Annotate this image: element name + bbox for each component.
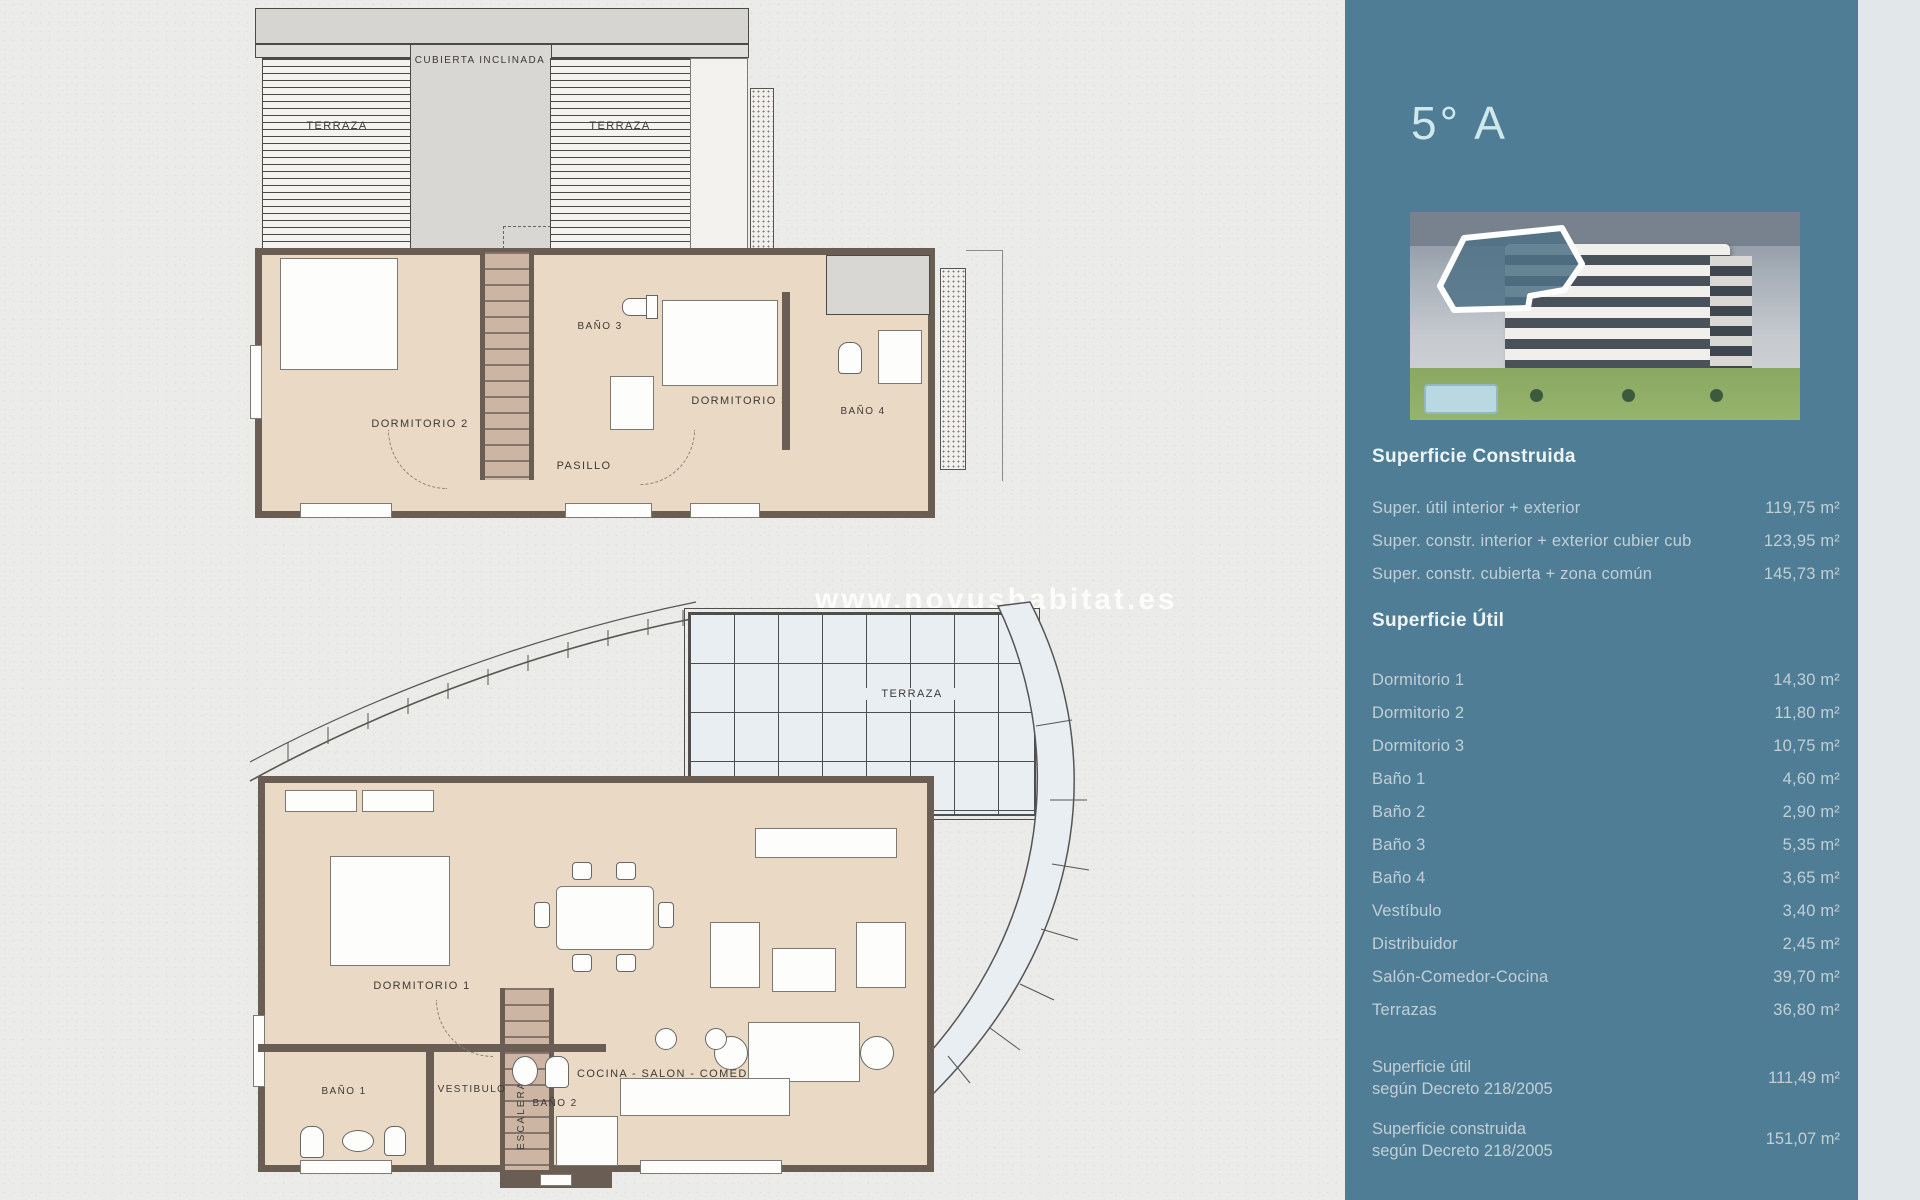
- totals-block: Superficie útil según Decreto 218/2005 1…: [1372, 1056, 1840, 1179]
- area-row-label: Baño 4: [1372, 862, 1426, 895]
- area-row: Dormitorio 1 14,30 m²: [1372, 664, 1840, 697]
- area-row: Super. constr. interior + exterior cubie…: [1372, 525, 1840, 558]
- dormitorio3-label: DORMITORIO 3: [690, 395, 790, 407]
- area-row: Super. útil interior + exterior 119,75 m…: [1372, 492, 1840, 525]
- cubierta-over-bano4: [826, 255, 930, 315]
- outer-step-line: [966, 250, 1003, 481]
- kitchen-counter: [620, 1078, 790, 1116]
- area-row-value: 10,75 m²: [1773, 730, 1840, 763]
- pasillo-label: PASILLO: [548, 460, 620, 472]
- util-rows: Dormitorio 1 14,30 m² Dormitorio 2 11,80…: [1372, 664, 1840, 1027]
- total-label-line2: según Decreto 218/2005: [1372, 1078, 1553, 1100]
- area-row: Baño 3 5,35 m²: [1372, 829, 1840, 862]
- cubierta-inclinada-label: CUBIERTA INCLINADA: [408, 55, 552, 66]
- window-lower-bottom1: [300, 1160, 392, 1174]
- sink-bano4: [878, 330, 922, 384]
- terrace-left-label: TERRAZA: [282, 120, 392, 132]
- area-row-value: 145,73 m²: [1764, 558, 1840, 591]
- total-row-value: 151,07 m²: [1766, 1130, 1840, 1149]
- window-lower-bottom2: [640, 1160, 782, 1174]
- sink-icon-bano1: [342, 1130, 374, 1152]
- area-row: Dormitorio 3 10,75 m²: [1372, 730, 1840, 763]
- bano4-label: BAÑO 4: [830, 406, 896, 417]
- upper-staircase: [480, 252, 534, 480]
- chair-1: [572, 862, 592, 880]
- cubierta-inclinada-block: [410, 44, 552, 250]
- area-row-value: 11,80 m²: [1775, 697, 1841, 730]
- chair-4: [616, 954, 636, 972]
- area-row-value: 119,75 m²: [1765, 492, 1840, 525]
- gravel-edge-right: [940, 268, 966, 470]
- info-panel: 5° A Superficie Construida Super. útil i…: [1345, 0, 1858, 1200]
- area-row-value: 14,30 m²: [1773, 664, 1840, 697]
- curved-canopy: [248, 556, 698, 791]
- chair-3: [572, 954, 592, 972]
- construida-heading: Superficie Construida: [1372, 446, 1576, 468]
- cistern-icon-bano3: [646, 295, 658, 319]
- stub-window: [540, 1174, 572, 1186]
- terrace-right-label: TERRAZA: [565, 120, 675, 132]
- toilet-icon-bano3: [622, 298, 648, 316]
- chair-6: [658, 902, 674, 928]
- area-row-label: Super. útil interior + exterior: [1372, 492, 1580, 525]
- bidet-icon-bano1: [384, 1126, 406, 1156]
- area-row-value: 39,70 m²: [1773, 961, 1840, 994]
- area-row-value: 123,95 m²: [1764, 525, 1840, 558]
- gravel-edge-upper: [750, 88, 774, 260]
- area-row: Baño 2 2,90 m²: [1372, 796, 1840, 829]
- stool-2: [705, 1028, 727, 1050]
- vestibulo-label: VESTIBULO: [432, 1084, 512, 1095]
- armchair-right: [856, 922, 906, 988]
- area-row-label: Vestíbulo: [1372, 895, 1442, 928]
- area-row-label: Super. constr. interior + exterior cubie…: [1372, 525, 1691, 558]
- side-table-lamp-right: [860, 1036, 894, 1070]
- stool-1: [655, 1028, 677, 1050]
- upper-floor-plan: TERRAZA CUBIERTA INCLINADA TERRAZA DORMI…: [0, 0, 1100, 560]
- area-row-label: Dormitorio 1: [1372, 664, 1464, 697]
- area-row: Vestíbulo 3,40 m²: [1372, 895, 1840, 928]
- util-heading: Superficie Útil: [1372, 610, 1504, 632]
- area-row: Terrazas 36,80 m²: [1372, 994, 1840, 1027]
- area-row-label: Dormitorio 2: [1372, 697, 1464, 730]
- shower-bano3: [610, 376, 654, 430]
- sideboard: [755, 828, 897, 858]
- area-row: Super. constr. cubierta + zona común 145…: [1372, 558, 1840, 591]
- bano2-label: BAÑO 2: [522, 1098, 588, 1109]
- closet-1: [285, 790, 357, 812]
- side-deck: [690, 58, 748, 250]
- bano3-label: BAÑO 3: [566, 321, 634, 332]
- toilet-icon-bano2: [545, 1056, 569, 1088]
- bed-dormitorio2: [280, 258, 398, 370]
- dining-table: [556, 886, 654, 950]
- total-row-label: Superficie útil según Decreto 218/2005: [1372, 1056, 1553, 1101]
- partition-v1: [426, 1044, 434, 1166]
- total-row-value: 111,49 m²: [1768, 1069, 1840, 1088]
- shower-bano2: [556, 1116, 618, 1166]
- dormitorio2-label: DORMITORIO 2: [350, 418, 490, 430]
- area-row-value: 4,60 m²: [1783, 763, 1840, 796]
- window-upper-bottom1: [300, 503, 392, 518]
- terrace-right-hatch: [550, 58, 692, 250]
- area-row-value: 3,65 m²: [1783, 862, 1840, 895]
- total-row: Superficie construida según Decreto 218/…: [1372, 1118, 1840, 1163]
- bed-dormitorio3: [662, 300, 778, 386]
- coffee-table: [772, 948, 836, 992]
- window-upper-bottom2: [565, 503, 652, 518]
- roof-banner: [255, 8, 749, 44]
- armchair-left: [710, 922, 760, 988]
- area-row-value: 2,90 m²: [1783, 796, 1840, 829]
- skylight-dashed-box: [503, 226, 551, 249]
- total-label-line1: Superficie útil: [1372, 1056, 1553, 1078]
- area-row-label: Salón-Comedor-Cocina: [1372, 961, 1548, 994]
- right-edge-strip: [1858, 0, 1920, 1200]
- unit-title: 5° A: [1411, 96, 1508, 150]
- construida-rows: Super. útil interior + exterior 119,75 m…: [1372, 492, 1840, 591]
- sofa: [748, 1022, 860, 1082]
- area-row-label: Baño 2: [1372, 796, 1426, 829]
- closet-2: [362, 790, 434, 812]
- area-row-label: Dormitorio 3: [1372, 730, 1464, 763]
- window-upper-bottom3: [690, 503, 760, 518]
- area-row-label: Baño 3: [1372, 829, 1426, 862]
- area-row: Baño 4 3,65 m²: [1372, 862, 1840, 895]
- area-row: Distribuidor 2,45 m²: [1372, 928, 1840, 961]
- chair-5: [534, 902, 550, 928]
- area-row-value: 3,40 m²: [1783, 895, 1840, 928]
- area-row-label: Distribuidor: [1372, 928, 1458, 961]
- area-row: Dormitorio 2 11,80 m²: [1372, 697, 1840, 730]
- toilet-icon-bano1: [300, 1126, 324, 1158]
- bano4-wall-v: [782, 292, 790, 450]
- toilet-icon-bano4: [838, 342, 862, 374]
- area-row: Baño 1 4,60 m²: [1372, 763, 1840, 796]
- area-row-value: 5,35 m²: [1783, 829, 1840, 862]
- chair-2: [616, 862, 636, 880]
- bed-dormitorio1: [330, 856, 450, 966]
- curved-glass-wall: [912, 600, 1112, 1100]
- total-label-line2: según Decreto 218/2005: [1372, 1140, 1553, 1162]
- lower-floor-plan: TERRAZA DORMITORIO 1 ESCALERA COCINA - S…: [0, 550, 1150, 1200]
- penthouse-highlight-outline: [1410, 212, 1800, 420]
- total-row: Superficie útil según Decreto 218/2005 1…: [1372, 1056, 1840, 1101]
- brochure-page: { "page": { "watermark": "www.novushabit…: [0, 0, 1920, 1200]
- bano1-label: BAÑO 1: [308, 1086, 380, 1097]
- area-row-label: Baño 1: [1372, 763, 1426, 796]
- total-label-line1: Superficie construida: [1372, 1118, 1553, 1140]
- area-row-label: Terrazas: [1372, 994, 1437, 1027]
- area-row: Salón-Comedor-Cocina 39,70 m²: [1372, 961, 1840, 994]
- window-upper-left: [250, 345, 262, 419]
- total-row-label: Superficie construida según Decreto 218/…: [1372, 1118, 1553, 1163]
- dormitorio1-label: DORMITORIO 1: [352, 980, 492, 992]
- area-row-label: Super. constr. cubierta + zona común: [1372, 558, 1652, 591]
- area-row-value: 2,45 m²: [1783, 928, 1840, 961]
- area-row-value: 36,80 m²: [1773, 994, 1840, 1027]
- terrace-left-hatch: [262, 58, 412, 250]
- sink-icon-bano2: [512, 1056, 538, 1086]
- building-render: [1410, 212, 1800, 420]
